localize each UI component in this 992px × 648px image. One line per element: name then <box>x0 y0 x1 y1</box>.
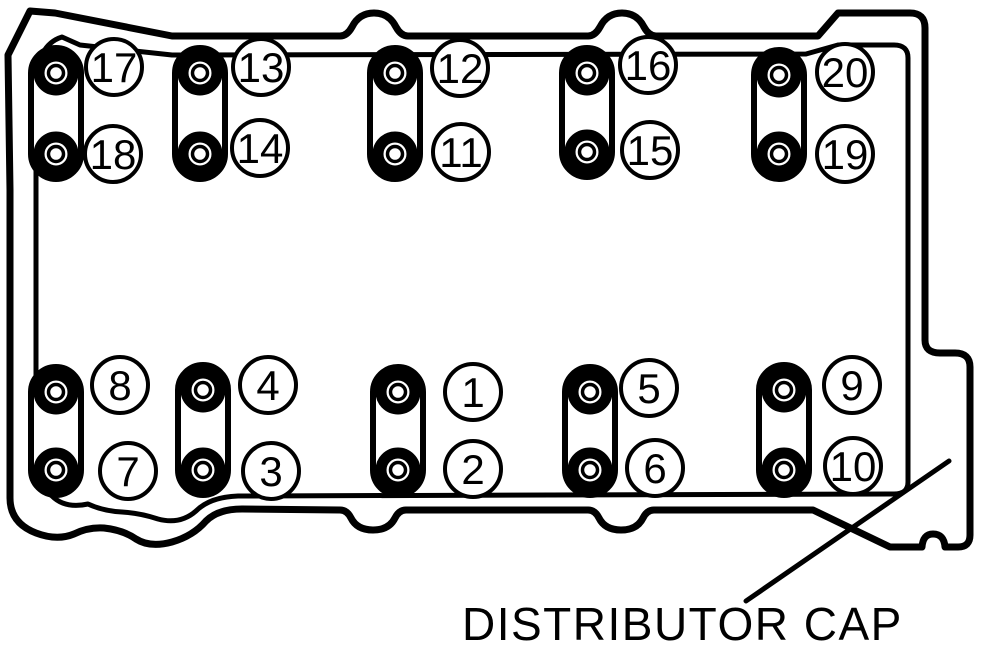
sequence-number-19: 19 <box>822 131 869 178</box>
bolt-washer <box>196 463 211 478</box>
sequence-number-3: 3 <box>259 448 282 495</box>
sequence-number-14: 14 <box>237 125 284 172</box>
sequence-number-11: 11 <box>439 129 483 176</box>
sequence-number-16: 16 <box>625 42 672 89</box>
bolt-washer <box>777 383 792 398</box>
sequence-number-7: 7 <box>116 448 139 495</box>
sequence-number-6: 6 <box>643 445 666 492</box>
bolt-washer <box>580 145 595 160</box>
bolt-slots <box>31 48 809 495</box>
bolt-washer <box>388 147 403 162</box>
bolt-washer <box>193 147 208 162</box>
distributor-cap-label: DISTRIBUTOR CAP <box>462 598 903 648</box>
sequence-number-9: 9 <box>840 362 863 409</box>
sequence-number-10: 10 <box>830 443 877 490</box>
sequence-number-17: 17 <box>91 44 138 91</box>
bolt-washer <box>49 385 64 400</box>
bolt-washer <box>391 385 406 400</box>
bolt-washer <box>391 463 406 478</box>
sequence-number-15: 15 <box>627 127 674 174</box>
bolt-washer <box>196 383 211 398</box>
bolt-washer <box>583 463 598 478</box>
bolt-washer <box>49 463 64 478</box>
sequence-number-5: 5 <box>637 365 660 412</box>
scanned-diagram-page: 1718131412111615201987431256910 DISTRIBU… <box>0 0 992 648</box>
bolt-washer <box>49 147 64 162</box>
bolt-washer <box>772 68 787 83</box>
torque-sequence-diagram: 1718131412111615201987431256910 DISTRIBU… <box>0 0 992 648</box>
sequence-number-20: 20 <box>822 49 869 96</box>
sequence-number-8: 8 <box>108 362 131 409</box>
sequence-number-1: 1 <box>461 369 484 416</box>
bolt-washer <box>49 66 64 81</box>
bolt-washer <box>193 66 208 81</box>
bolt-washer <box>777 463 792 478</box>
sequence-number-4: 4 <box>256 362 279 409</box>
sequence-number-18: 18 <box>90 131 137 178</box>
bolt-washer <box>580 66 595 81</box>
sequence-number-2: 2 <box>461 446 484 493</box>
sequence-number-13: 13 <box>238 44 285 91</box>
bolt-washer <box>388 66 403 81</box>
sequence-number-12: 12 <box>437 45 484 92</box>
bolt-washer <box>772 147 787 162</box>
bolt-washer <box>583 385 598 400</box>
